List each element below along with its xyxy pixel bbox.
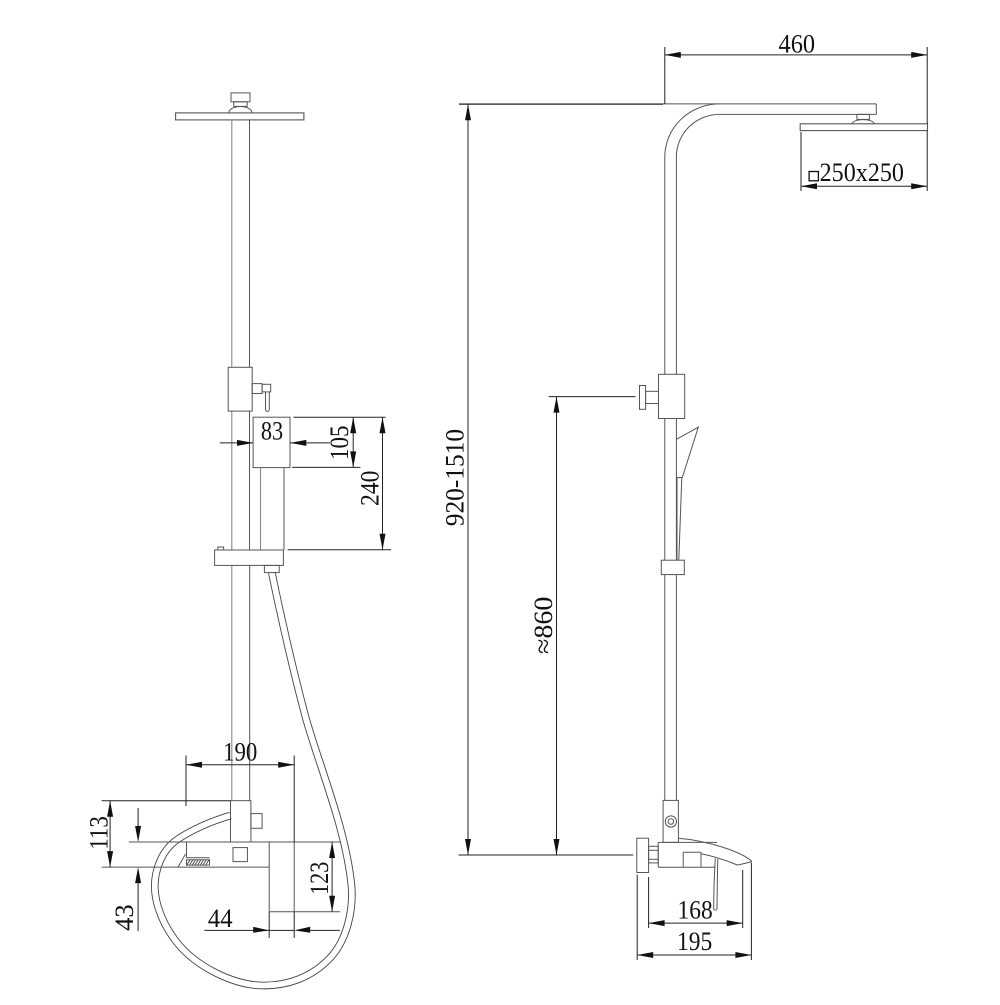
svg-text:240: 240 bbox=[355, 471, 385, 507]
svg-text:43: 43 bbox=[109, 904, 139, 931]
svg-text:190: 190 bbox=[223, 736, 257, 766]
svg-text:≈860: ≈860 bbox=[528, 597, 558, 654]
svg-text:460: 460 bbox=[779, 29, 816, 59]
svg-text:250x250: 250x250 bbox=[820, 157, 904, 187]
svg-text:123: 123 bbox=[304, 862, 334, 895]
svg-text:920-1510: 920-1510 bbox=[440, 429, 470, 526]
svg-text:195: 195 bbox=[677, 926, 712, 956]
svg-text:113: 113 bbox=[84, 816, 114, 850]
svg-text:168: 168 bbox=[678, 894, 713, 924]
svg-text:44: 44 bbox=[208, 903, 233, 933]
svg-text:105: 105 bbox=[324, 426, 354, 461]
svg-text:83: 83 bbox=[261, 415, 283, 445]
